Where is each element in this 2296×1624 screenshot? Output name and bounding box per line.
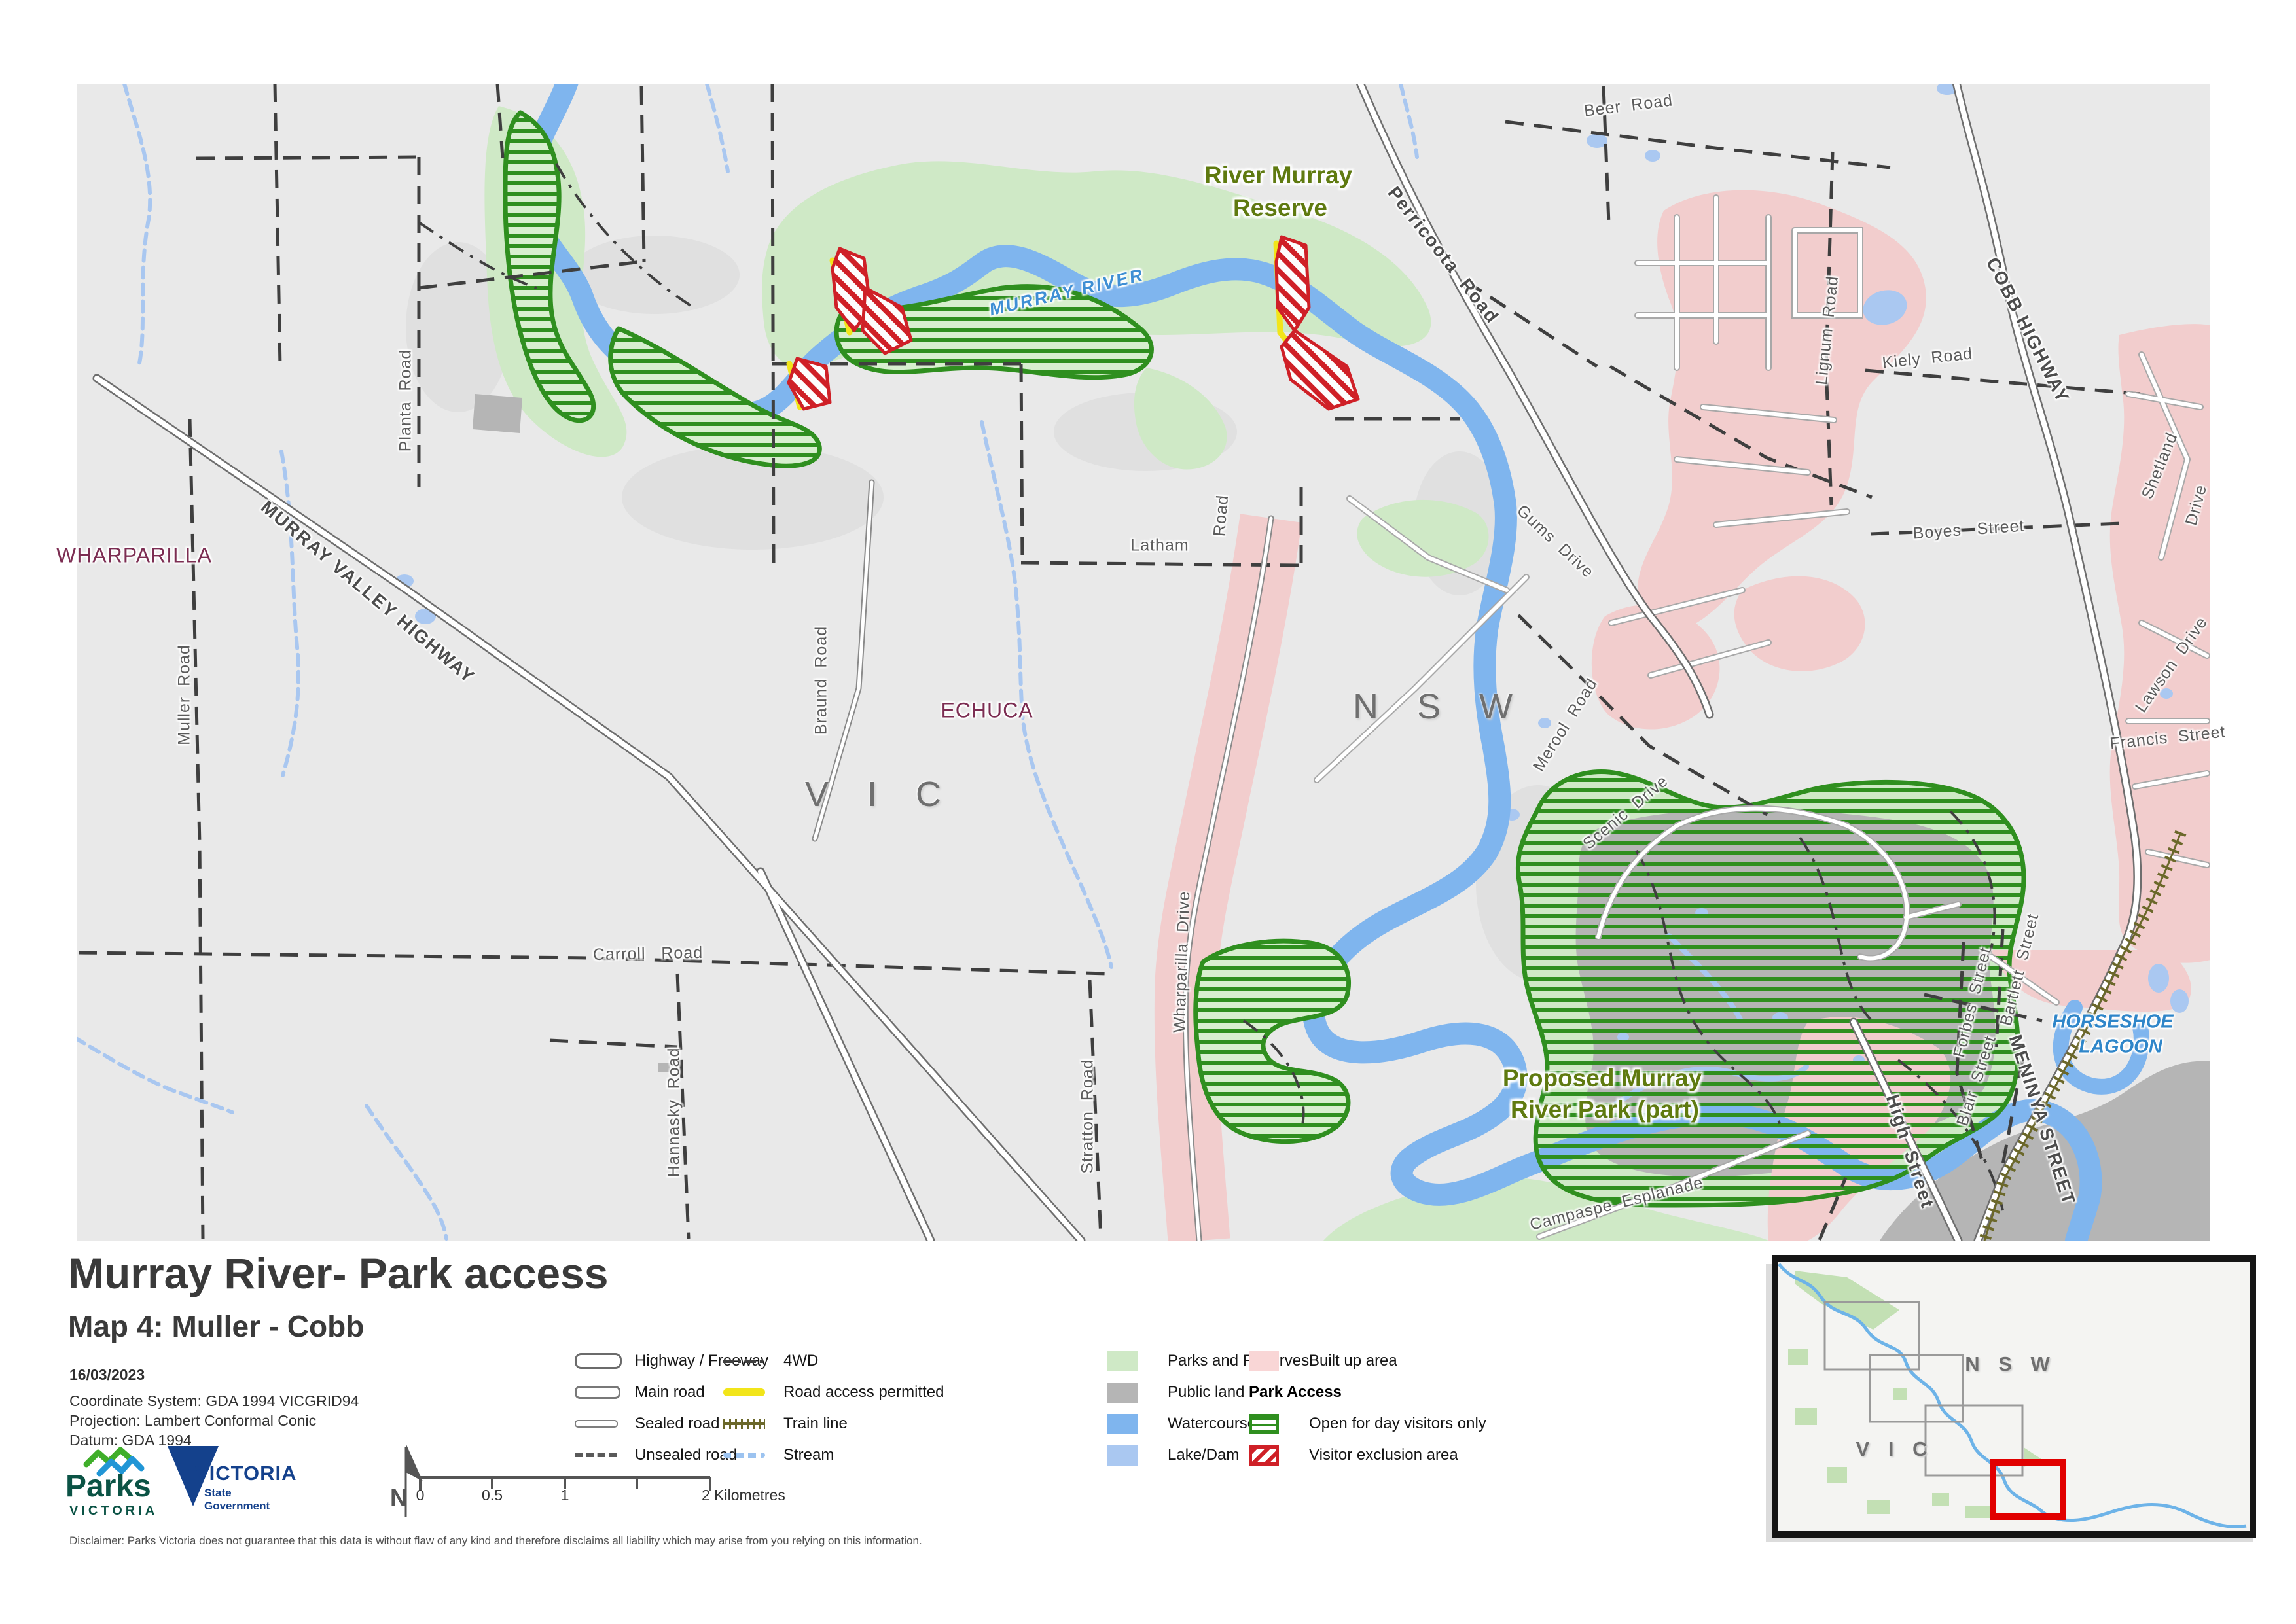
sealed-road-symbol <box>575 1420 618 1428</box>
legend-col-access: Built up area Park Access Open for day v… <box>1249 1345 1486 1471</box>
scale-tick-05: 0.5 <box>482 1487 503 1504</box>
map-date: 16/03/2023 <box>69 1366 145 1384</box>
legend-item-trainline: Train line <box>723 1408 944 1439</box>
scale-tick-1: 1 <box>561 1487 569 1504</box>
legend-item-4wd: 4WD <box>723 1345 944 1377</box>
main-map <box>46 80 2210 1241</box>
disclaimer-text: Disclaimer: Parks Victoria does not guar… <box>69 1534 922 1547</box>
parks-victoria-logo-name: Parks <box>65 1468 151 1504</box>
legend-col-tracks: 4WD Road access permitted Train line Str… <box>723 1345 944 1471</box>
legend-label: Open for day visitors only <box>1309 1415 1486 1433</box>
legend-label: Main road <box>635 1383 705 1402</box>
legend-label: 4WD <box>783 1352 818 1370</box>
legend-item-roadaccess: Road access permitted <box>723 1377 944 1408</box>
public-land-swatch <box>1107 1383 1138 1403</box>
victoria-logo-sub: State Government <box>204 1487 270 1513</box>
parks-victoria-logo-sub: VICTORIA <box>69 1504 158 1519</box>
legend-label: Lake/Dam <box>1168 1446 1239 1464</box>
legend-label: Unsealed road <box>635 1446 737 1464</box>
stream-symbol <box>723 1453 765 1458</box>
legend-label: Stream <box>783 1446 834 1464</box>
legend-park-access-heading: Park Access <box>1249 1377 1486 1408</box>
highway-symbol <box>575 1353 622 1369</box>
legend-item-open-day: Open for day visitors only <box>1249 1408 1486 1439</box>
unsealed-road-symbol <box>575 1453 617 1457</box>
fourwd-symbol <box>723 1360 765 1363</box>
watercourse-swatch <box>1107 1414 1138 1434</box>
scale-tick-0: 0 <box>416 1487 425 1504</box>
road-access-symbol <box>723 1388 765 1396</box>
legend-label: Public land <box>1168 1383 1244 1402</box>
legend-label: Road access permitted <box>783 1383 944 1402</box>
legend-item-stream: Stream <box>723 1439 944 1471</box>
exclusion-swatch <box>1249 1445 1279 1466</box>
legend-label: Train line <box>783 1415 848 1433</box>
legend-item-exclusion: Visitor exclusion area <box>1249 1439 1486 1471</box>
projection: Projection: Lambert Conformal Conic <box>69 1411 359 1430</box>
legend-label: Sealed road <box>635 1415 719 1433</box>
legend-label: Watercourse <box>1168 1415 1256 1433</box>
page-title: Murray River- Park access <box>68 1248 609 1298</box>
lake-dam-swatch <box>1107 1445 1138 1466</box>
page-subtitle: Map 4: Muller - Cobb <box>68 1309 364 1344</box>
built-up-swatch <box>1249 1351 1279 1371</box>
train-line-symbol <box>723 1419 765 1429</box>
coordinate-info: Coordinate System: GDA 1994 VICGRID94 Pr… <box>69 1391 359 1450</box>
victoria-logo-name: VICTORIA <box>195 1462 297 1485</box>
parks-swatch <box>1107 1351 1138 1371</box>
map-sheet: River MurrayReserveProposed MurrayRiver … <box>0 0 2296 1624</box>
scale-tick-2km: 2 Kilometres <box>702 1487 785 1504</box>
legend-label: Built up area <box>1309 1352 1397 1370</box>
coordinate-system: Coordinate System: GDA 1994 VICGRID94 <box>69 1391 359 1411</box>
inset-map <box>1766 1258 2253 1542</box>
datum: Datum: GDA 1994 <box>69 1430 359 1450</box>
legend-label: Visitor exclusion area <box>1309 1446 1458 1464</box>
main-road-symbol <box>575 1386 620 1399</box>
open-day-swatch <box>1249 1414 1279 1434</box>
legend-item-builtup: Built up area <box>1249 1345 1486 1377</box>
north-letter: N <box>390 1484 407 1511</box>
